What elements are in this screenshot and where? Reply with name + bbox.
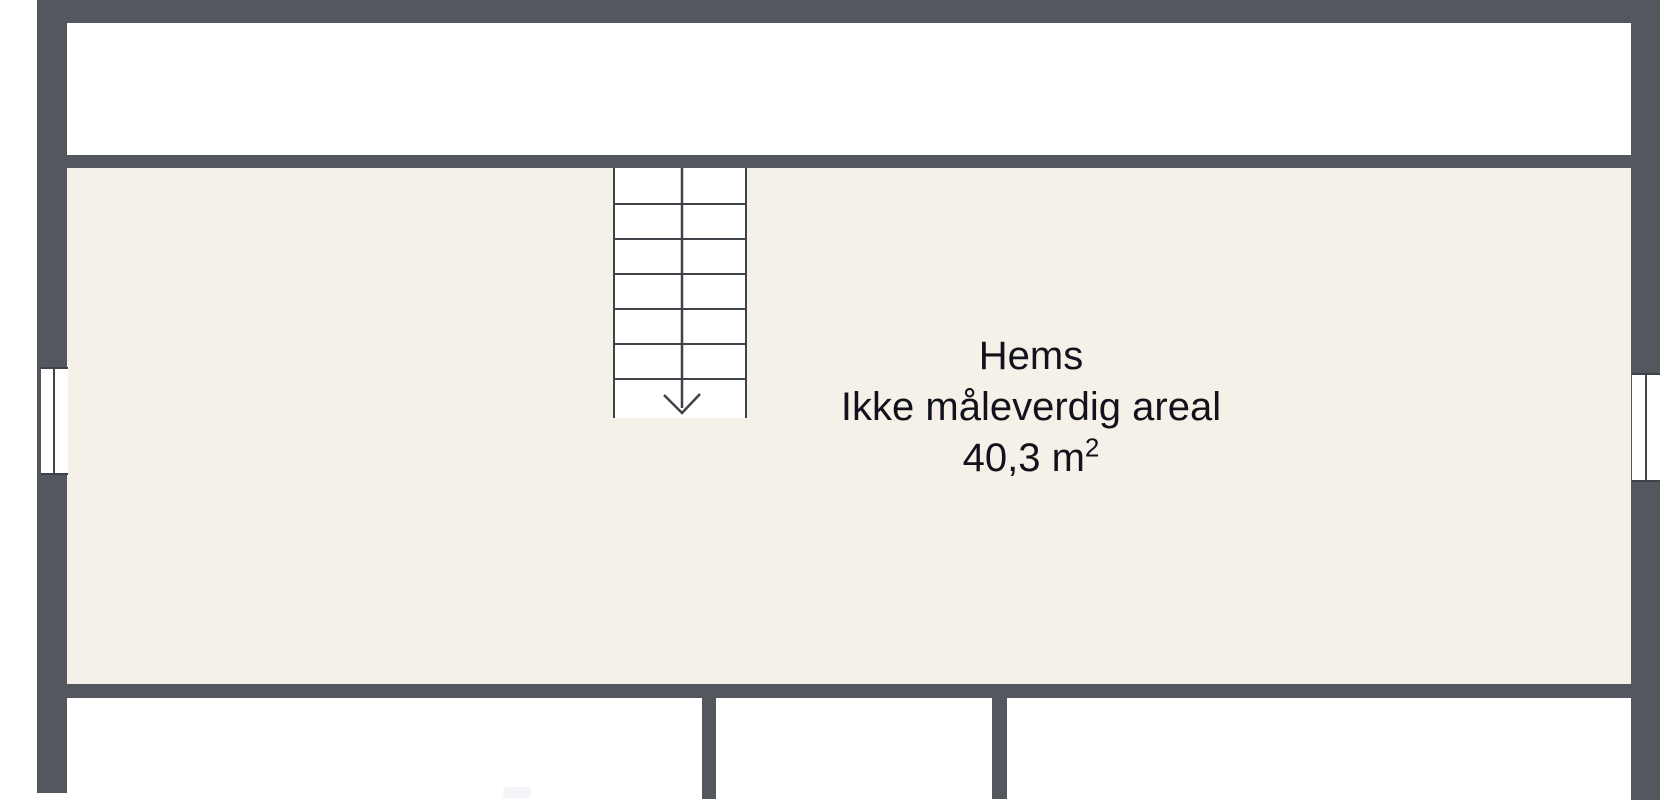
room-area: 40,3 m2 xyxy=(811,433,1251,484)
room-lower-right xyxy=(1007,698,1631,800)
wall-partition-left xyxy=(702,698,716,799)
room-label: Hems xyxy=(811,331,1251,382)
window-left xyxy=(41,367,68,475)
wall-partition-right xyxy=(992,698,1007,799)
room-lower-middle xyxy=(716,698,992,800)
room-lower-left xyxy=(67,698,702,800)
wall-interior-lower xyxy=(67,684,1631,698)
room-note: Ikke måleverdig areal xyxy=(811,382,1251,433)
window-glass-line xyxy=(53,369,55,473)
wall-top xyxy=(37,0,1660,23)
window-right xyxy=(1632,373,1660,482)
room-label-block: Hems Ikke måleverdig areal 40,3 m2 xyxy=(811,331,1251,484)
wall-interior-upper xyxy=(67,155,1631,168)
staircase xyxy=(613,168,747,418)
stair-centerline-and-arrow xyxy=(615,168,745,418)
room-upper xyxy=(67,23,1631,155)
floorplan: Hems Ikke måleverdig areal 40,3 m2 xyxy=(0,0,1670,800)
faint-mark xyxy=(503,787,531,798)
window-glass-line xyxy=(1645,375,1647,480)
